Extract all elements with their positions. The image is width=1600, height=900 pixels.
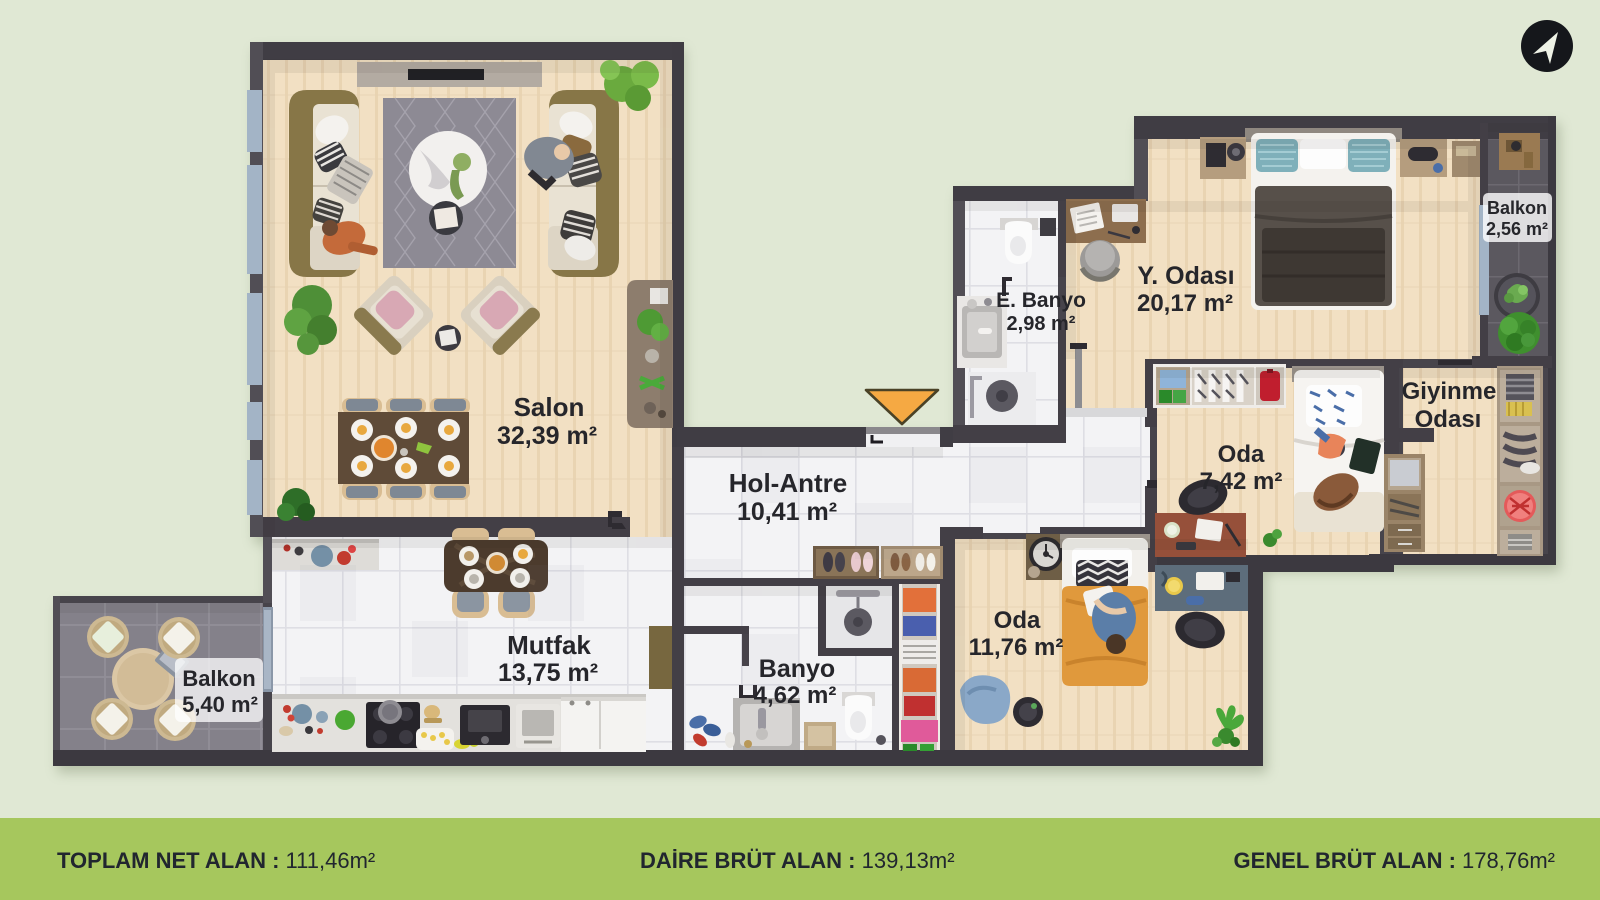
svg-text:32,39 m²: 32,39 m² [497, 422, 597, 450]
svg-text:Oda: Oda [994, 607, 1041, 634]
svg-text:GENEL BRÜT ALAN : 178,76m²: GENEL BRÜT ALAN : 178,76m² [1233, 848, 1555, 873]
svg-text:Balkon: Balkon [182, 666, 255, 691]
svg-text:Salon: Salon [514, 392, 585, 422]
svg-text:Balkon: Balkon [1487, 198, 1547, 218]
svg-text:20,17 m²: 20,17 m² [1137, 290, 1233, 317]
svg-text:4,62 m²: 4,62 m² [754, 682, 837, 709]
svg-text:7,42 m²: 7,42 m² [1200, 468, 1283, 495]
svg-text:5,40 m²: 5,40 m² [182, 692, 258, 717]
svg-text:Banyo: Banyo [759, 655, 835, 683]
svg-text:Mutfak: Mutfak [507, 630, 591, 660]
svg-text:Giyinme: Giyinme [1402, 378, 1497, 405]
svg-text:Hol-Antre: Hol-Antre [729, 468, 847, 498]
svg-text:10,41 m²: 10,41 m² [737, 498, 837, 526]
svg-text:DAİRE BRÜT ALAN : 139,13m²: DAİRE BRÜT ALAN : 139,13m² [640, 848, 955, 873]
svg-text:2,56 m²: 2,56 m² [1486, 219, 1548, 239]
svg-text:11,76 m²: 11,76 m² [969, 634, 1064, 661]
svg-text:Oda: Oda [1218, 441, 1265, 468]
svg-text:Odası: Odası [1415, 406, 1482, 433]
svg-text:TOPLAM NET ALAN : 111,46m²: TOPLAM NET ALAN : 111,46m² [57, 848, 375, 873]
svg-text:13,75 m²: 13,75 m² [498, 659, 598, 687]
svg-text:Y. Odası: Y. Odası [1137, 262, 1234, 290]
svg-text:2,98 m²: 2,98 m² [1007, 313, 1076, 335]
svg-text:E. Banyo: E. Banyo [996, 289, 1086, 312]
